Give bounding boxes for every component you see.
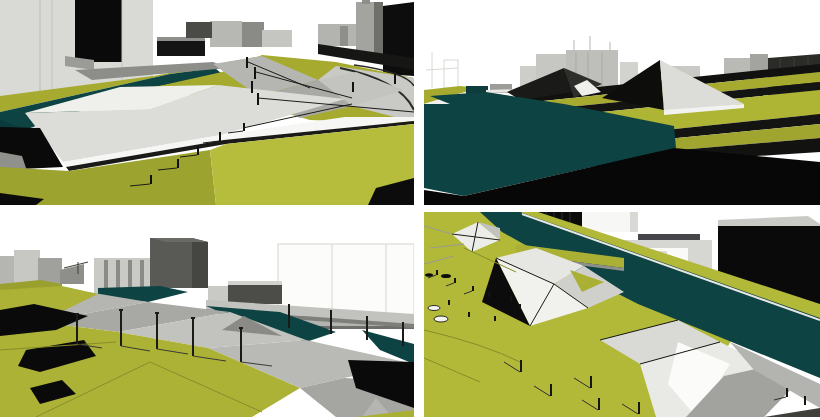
- render-view-bottom-right: [424, 212, 820, 417]
- render-view-top-left: [0, 0, 414, 205]
- render-view-bottom-left-canvas: [0, 212, 414, 417]
- render-view-top-right: [424, 0, 820, 205]
- render-view-top-left-canvas: [0, 0, 414, 205]
- render-collage: [0, 0, 820, 420]
- render-view-top-right-canvas: [424, 0, 820, 205]
- render-view-bottom-right-canvas: [424, 212, 820, 417]
- render-view-bottom-left: [0, 212, 414, 417]
